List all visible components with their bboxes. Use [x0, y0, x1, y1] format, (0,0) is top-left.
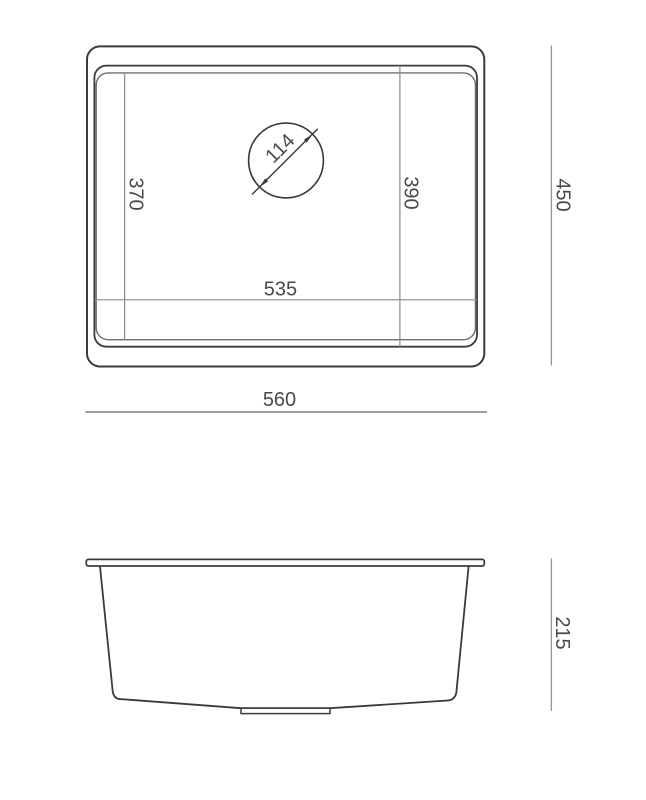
svg-text:215: 215 — [551, 616, 573, 649]
svg-text:450: 450 — [552, 178, 574, 211]
svg-text:560: 560 — [263, 389, 296, 411]
svg-text:535: 535 — [264, 278, 297, 300]
svg-text:370: 370 — [125, 177, 147, 210]
svg-text:390: 390 — [400, 176, 422, 209]
